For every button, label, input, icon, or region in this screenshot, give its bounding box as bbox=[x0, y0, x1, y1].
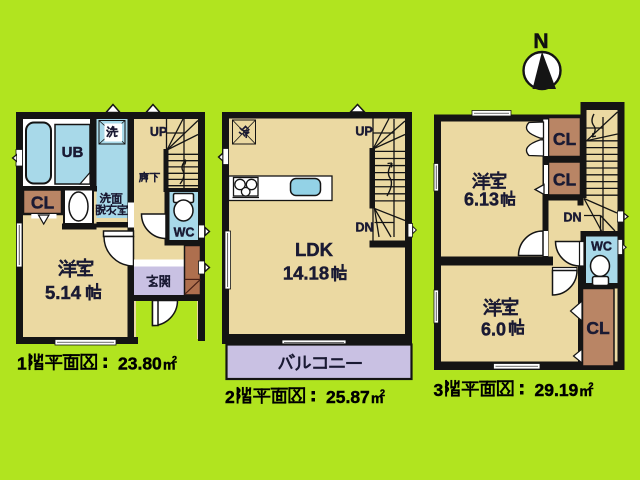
svg-text:6.13: 6.13 bbox=[464, 190, 499, 210]
svg-text:DN: DN bbox=[563, 211, 581, 225]
svg-text:6.0: 6.0 bbox=[481, 320, 506, 340]
svg-text:3: 3 bbox=[434, 380, 444, 400]
svg-text:2: 2 bbox=[380, 388, 385, 398]
svg-text:2: 2 bbox=[172, 355, 177, 365]
svg-text:N: N bbox=[533, 30, 548, 53]
svg-text:CL: CL bbox=[553, 129, 577, 149]
svg-text:23.80: 23.80 bbox=[118, 354, 162, 374]
svg-text:CL: CL bbox=[553, 170, 577, 190]
svg-text:2: 2 bbox=[589, 381, 594, 391]
svg-text:UP: UP bbox=[150, 125, 167, 139]
svg-text:CL: CL bbox=[586, 318, 610, 338]
svg-text:UB: UB bbox=[62, 144, 84, 161]
svg-text:DN: DN bbox=[355, 221, 373, 235]
svg-text:14.18: 14.18 bbox=[283, 263, 329, 284]
svg-text:5.14: 5.14 bbox=[45, 282, 82, 303]
svg-text:1: 1 bbox=[17, 354, 27, 374]
svg-text:CL: CL bbox=[31, 193, 55, 213]
svg-text:2: 2 bbox=[225, 387, 235, 407]
svg-text:WC: WC bbox=[591, 240, 612, 254]
svg-text:LDK: LDK bbox=[295, 239, 334, 260]
svg-text:WC: WC bbox=[174, 226, 195, 240]
svg-text:25.87: 25.87 bbox=[326, 387, 370, 407]
svg-text:29.19: 29.19 bbox=[535, 380, 579, 400]
svg-text:UP: UP bbox=[355, 125, 372, 139]
